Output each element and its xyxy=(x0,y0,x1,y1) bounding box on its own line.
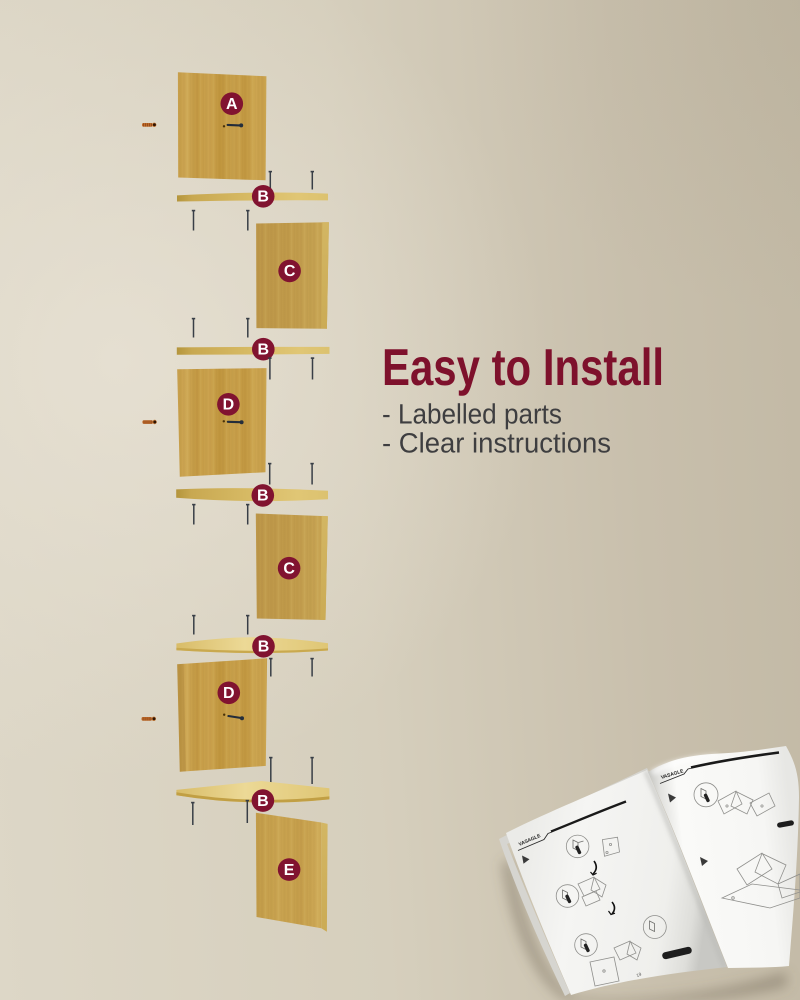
svg-text:B: B xyxy=(257,793,269,810)
svg-text:B: B xyxy=(258,342,270,359)
svg-text:D: D xyxy=(223,397,235,414)
svg-text:B: B xyxy=(257,488,269,505)
svg-text:C: C xyxy=(283,561,295,578)
svg-text:C: C xyxy=(284,263,296,280)
svg-text:Easy to Install: Easy to Install xyxy=(382,339,664,397)
svg-text:E: E xyxy=(284,862,295,879)
svg-text:B: B xyxy=(258,639,270,656)
svg-text:B: B xyxy=(257,189,269,206)
svg-text:- Clear instructions: - Clear instructions xyxy=(382,428,611,459)
svg-text:- Labelled parts: - Labelled parts xyxy=(382,399,562,430)
svg-text:A: A xyxy=(226,96,238,113)
svg-text:D: D xyxy=(223,685,235,702)
